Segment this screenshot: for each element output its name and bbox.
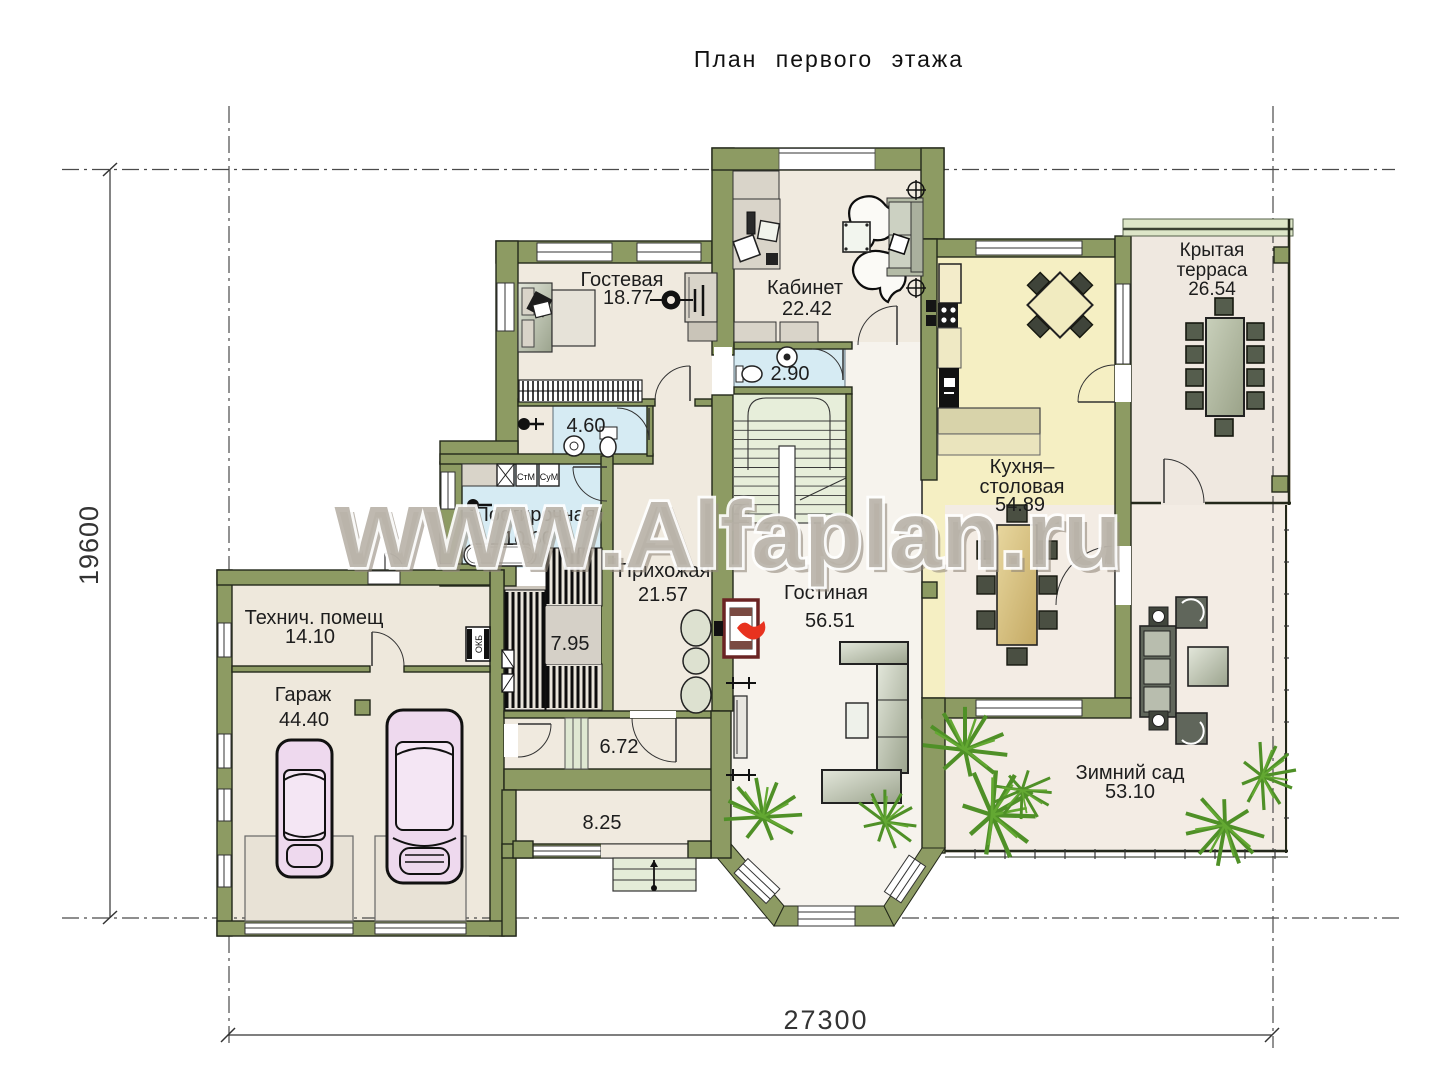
svg-text:www.Alfaplan.ru: www.Alfaplan.ru — [334, 465, 1121, 591]
svg-text:терраса: терраса — [1177, 260, 1248, 281]
svg-text:44.40: 44.40 — [279, 709, 329, 731]
svg-text:26.54: 26.54 — [1188, 279, 1236, 300]
svg-text:ОКБ: ОКБ — [474, 635, 484, 653]
svg-text:2.90: 2.90 — [771, 363, 810, 385]
svg-text:Кабинет: Кабинет — [767, 277, 843, 299]
svg-text:22.42: 22.42 — [782, 298, 832, 320]
svg-text:19600: 19600 — [74, 505, 104, 585]
svg-text:4.60: 4.60 — [567, 415, 606, 437]
svg-text:План первого этажа: План первого этажа — [694, 46, 964, 72]
svg-text:18.77: 18.77 — [603, 287, 653, 309]
svg-text:14.10: 14.10 — [285, 626, 335, 648]
svg-text:Гараж: Гараж — [275, 684, 332, 706]
svg-text:8.25: 8.25 — [583, 812, 622, 834]
svg-text:53.10: 53.10 — [1105, 781, 1155, 803]
svg-text:Крытая: Крытая — [1180, 240, 1245, 261]
svg-text:56.51: 56.51 — [805, 610, 855, 632]
svg-text:6.72: 6.72 — [600, 736, 639, 758]
svg-text:7.95: 7.95 — [551, 633, 590, 655]
svg-text:27300: 27300 — [783, 1005, 868, 1035]
svg-text:Кухня–: Кухня– — [990, 456, 1056, 478]
